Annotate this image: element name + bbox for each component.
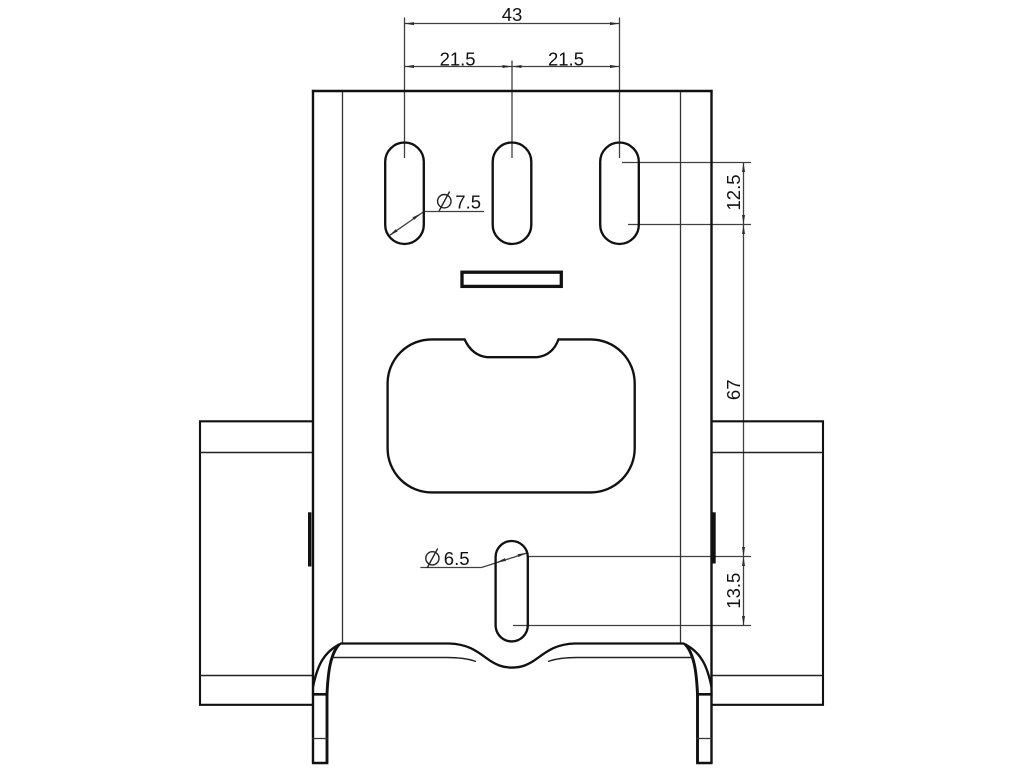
svg-text:67: 67 (723, 380, 744, 401)
svg-text:43: 43 (502, 4, 523, 25)
svg-text:7.5: 7.5 (455, 192, 481, 213)
svg-text:12.5: 12.5 (723, 174, 744, 210)
svg-text:13.5: 13.5 (723, 573, 744, 609)
svg-text:21.5: 21.5 (440, 49, 476, 70)
svg-text:21.5: 21.5 (548, 49, 584, 70)
svg-text:6.5: 6.5 (444, 548, 470, 569)
